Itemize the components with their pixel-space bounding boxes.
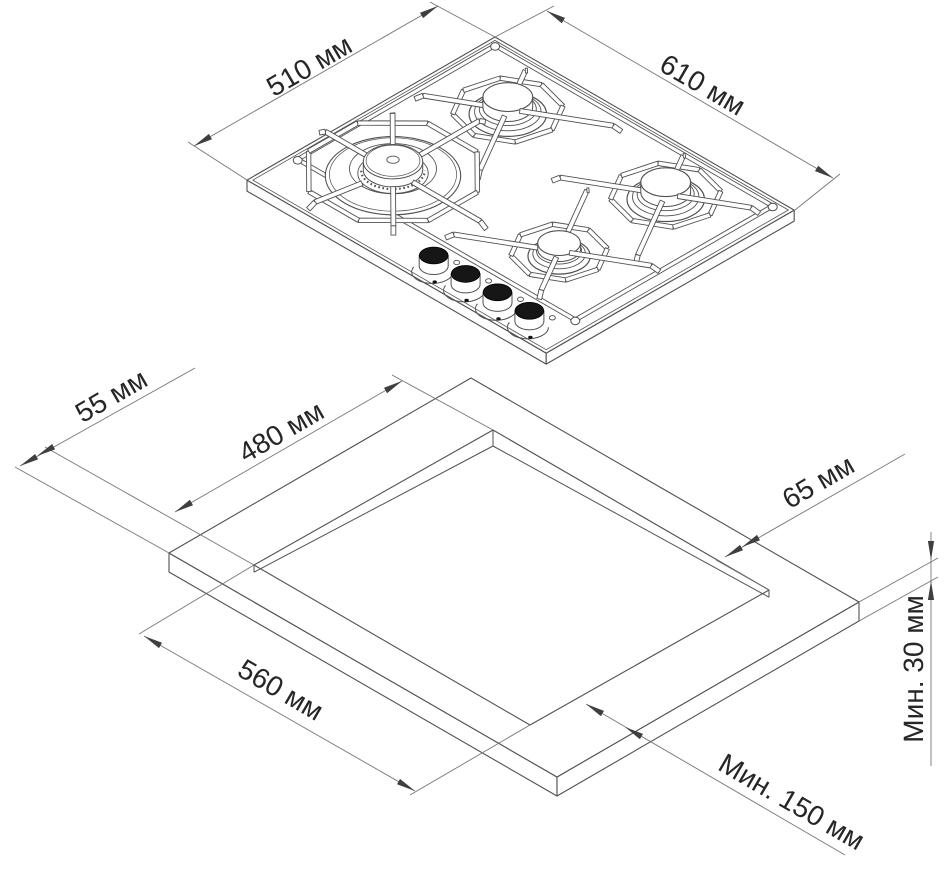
svg-text:Мин. 30 мм: Мин. 30 мм xyxy=(898,595,929,742)
